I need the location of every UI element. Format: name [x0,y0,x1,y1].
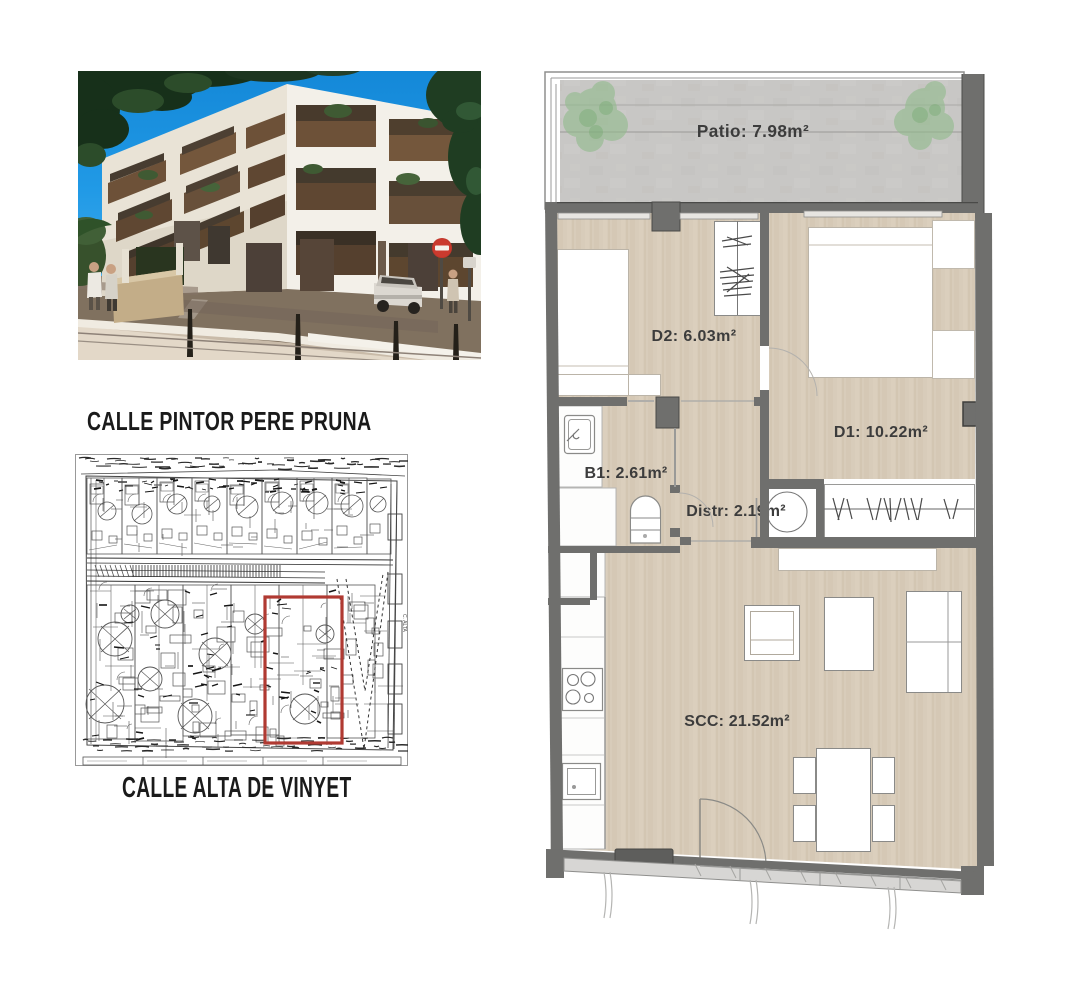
svg-text:D1: 10.22m²: D1: 10.22m² [834,424,928,441]
svg-text:SCC: 21.52m²: SCC: 21.52m² [684,713,790,730]
svg-text:B1: 2.61m²: B1: 2.61m² [585,465,668,482]
svg-text:Distr: 2.19m²: Distr: 2.19m² [686,503,786,520]
svg-text:C. ALTA: C. ALTA [401,614,407,633]
svg-text:Patio: 7.98m²: Patio: 7.98m² [697,121,809,141]
svg-text:D2: 6.03m²: D2: 6.03m² [652,328,737,345]
